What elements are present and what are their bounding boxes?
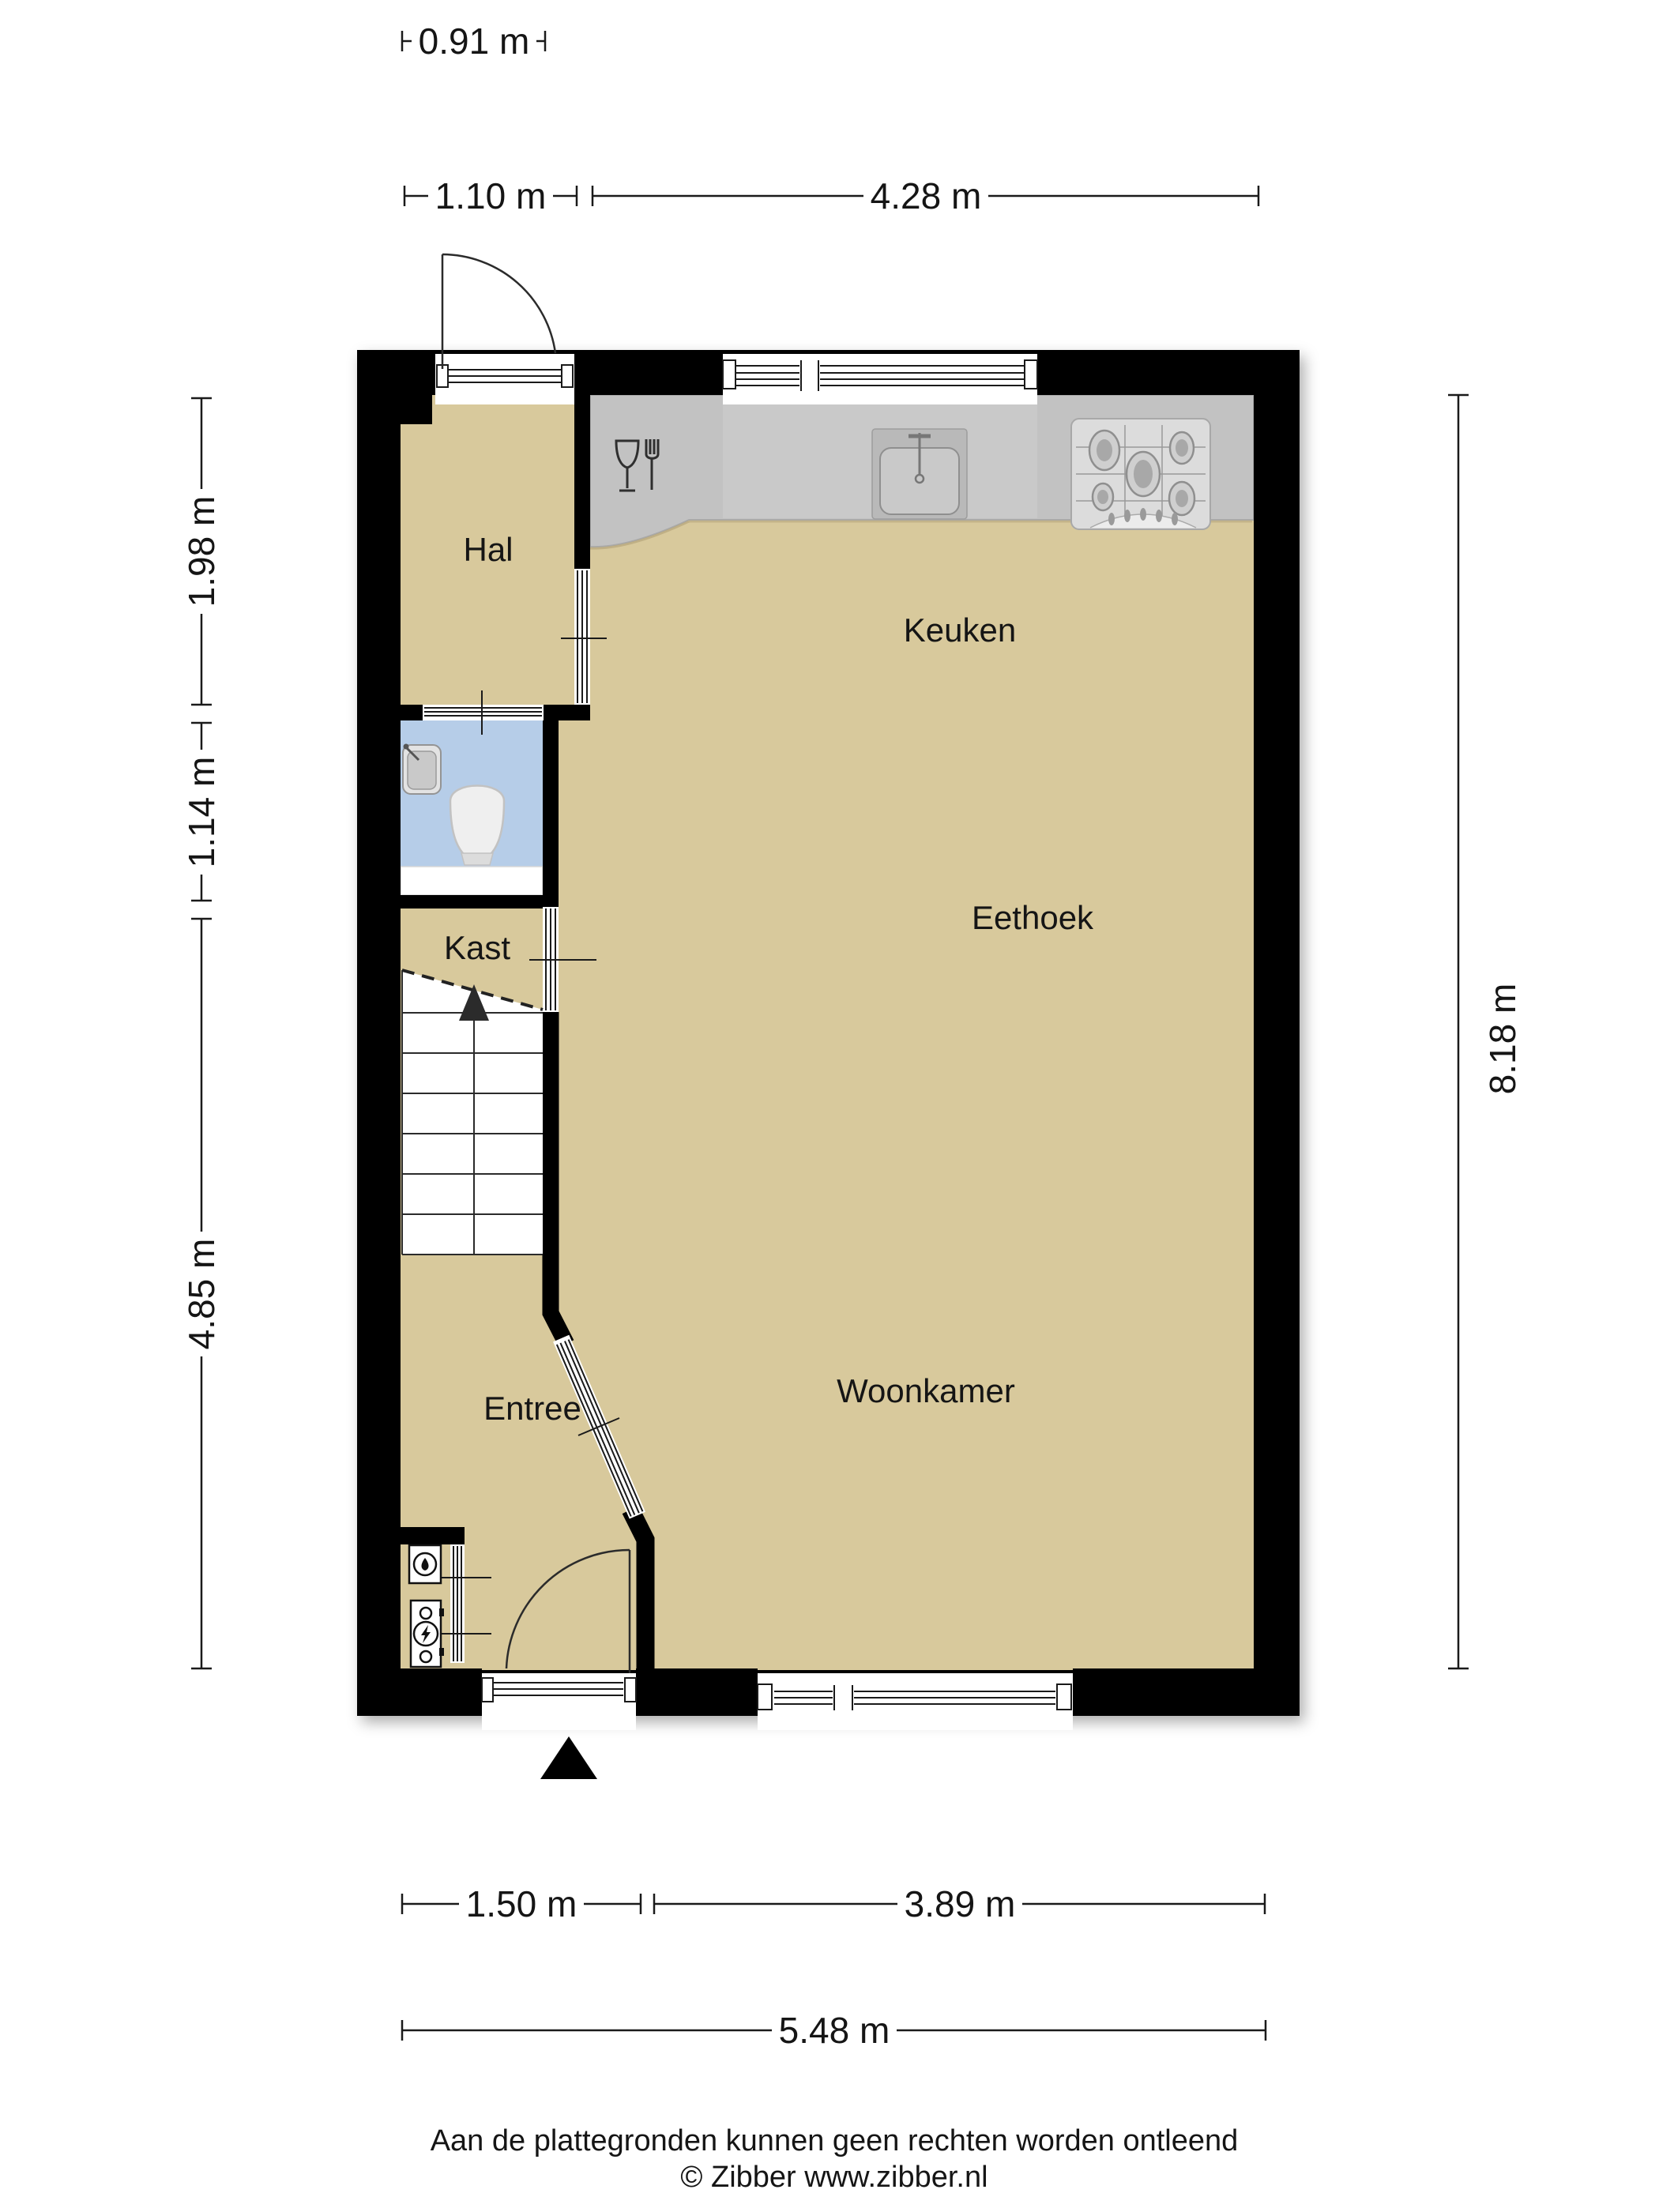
livingroom-window [758, 1673, 1073, 1730]
wall-hal-pier [401, 395, 432, 424]
dim-left-middle: 1.14 m [181, 723, 222, 901]
front-door-top [435, 254, 574, 404]
dim-top-left: 1.10 m [404, 175, 577, 216]
svg-text:4.28 m: 4.28 m [871, 175, 982, 216]
dim-bottom-full: 5.48 m [402, 2010, 1266, 2051]
footer-copyright: © Zibber www.zibber.nl [680, 2161, 987, 2194]
dim-right-full: 8.18 m [1448, 395, 1523, 1668]
svg-text:1.10 m: 1.10 m [435, 175, 547, 216]
front-door-swing-arc [442, 254, 555, 353]
wall-toilet-bottom [401, 895, 559, 908]
room-label-eethoek: Eethoek [972, 899, 1094, 936]
wall-toilet-right [543, 705, 559, 907]
dim-top-right: 4.28 m [592, 175, 1258, 216]
staircase [402, 970, 543, 1255]
room-label-woonkamer: Woonkamer [837, 1372, 1015, 1409]
front-door-opening [435, 354, 574, 404]
floorplan-canvas: Hal Keuken Eethoek Kast Woonkamer Entree… [0, 0, 1659, 2212]
svg-text:8.18 m: 8.18 m [1482, 984, 1523, 1095]
electricity-meter-icon [411, 1601, 444, 1667]
wall-hal-keuken [574, 395, 590, 569]
room-label-kast: Kast [444, 929, 510, 966]
wall-left [357, 350, 401, 1716]
dim-top-small: 0.91 m [402, 21, 545, 62]
svg-text:1.98 m: 1.98 m [181, 496, 222, 608]
svg-text:1.50 m: 1.50 m [466, 1883, 577, 1924]
wall-right [1254, 350, 1300, 1716]
svg-text:4.85 m: 4.85 m [181, 1239, 222, 1350]
svg-text:0.91 m: 0.91 m [419, 21, 530, 62]
kitchen-sink-icon [872, 429, 967, 519]
water-meter-icon [409, 1545, 441, 1583]
svg-text:5.48 m: 5.48 m [779, 2010, 890, 2051]
room-label-keuken: Keuken [904, 611, 1016, 649]
dim-left-upper: 1.98 m [181, 398, 222, 705]
toilet-recess [401, 867, 543, 895]
footer-disclaimer: Aan de plattegronden kunnen geen rechten… [431, 2124, 1239, 2157]
room-label-hal: Hal [463, 531, 513, 568]
wall-meter-cupboard [401, 1527, 465, 1544]
wall-top-mid [574, 350, 723, 395]
wall-hal-toilet-left [401, 705, 423, 720]
svg-text:1.14 m: 1.14 m [181, 757, 222, 868]
stove-icon [1071, 419, 1210, 529]
dim-left-lower: 4.85 m [181, 919, 222, 1668]
kitchen-window [723, 354, 1037, 404]
footer: Aan de plattegronden kunnen geen rechten… [431, 2124, 1239, 2194]
wall-bottom-mid [636, 1668, 758, 1716]
dim-bottom-left: 1.50 m [402, 1883, 641, 1924]
dim-bottom-right: 3.89 m [654, 1883, 1265, 1924]
room-label-entree: Entree [483, 1390, 581, 1427]
washbasin-icon [403, 744, 441, 795]
svg-text:3.89 m: 3.89 m [905, 1883, 1016, 1924]
entrance-arrow-icon [540, 1736, 597, 1779]
floorplan-page: Hal Keuken Eethoek Kast Woonkamer Entree… [0, 0, 1659, 2212]
